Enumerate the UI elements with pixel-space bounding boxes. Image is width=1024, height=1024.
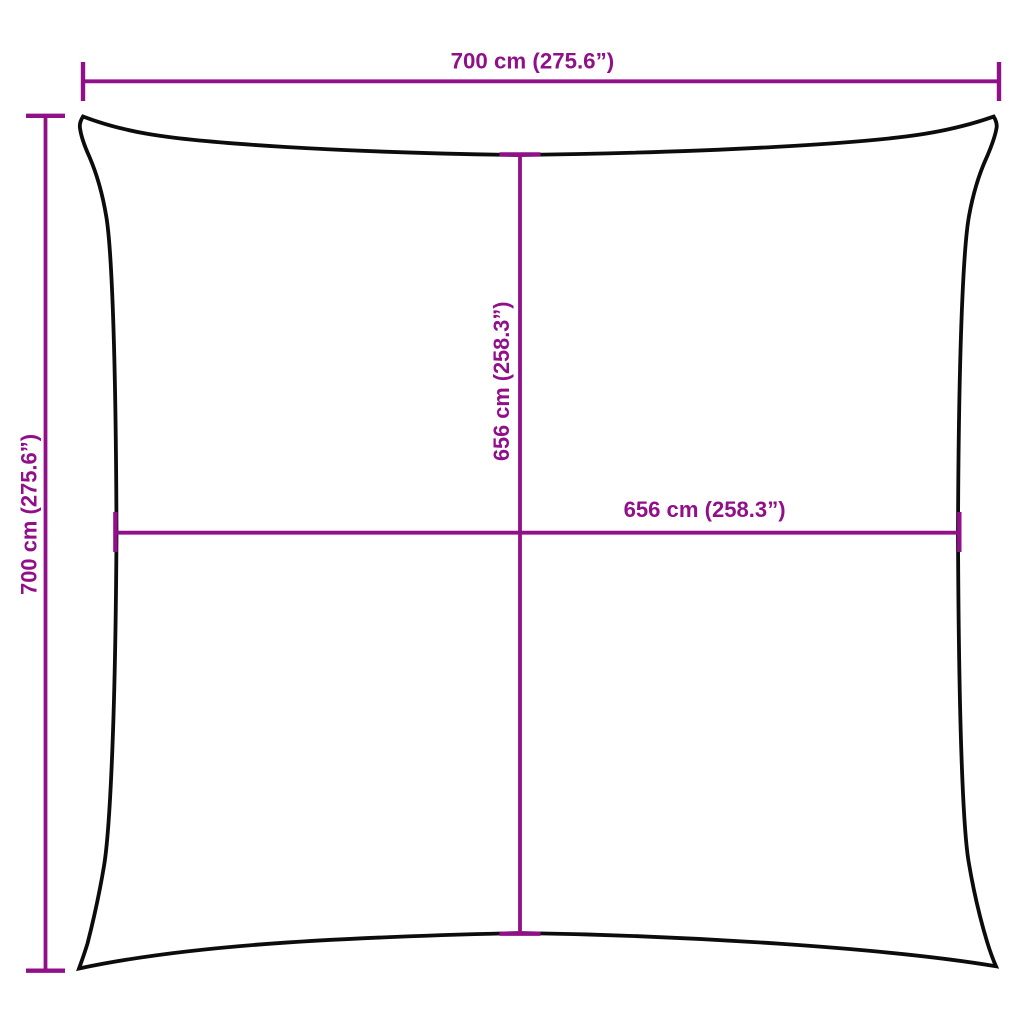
svg-text:700 cm (275.6”): 700 cm (275.6”) (451, 48, 615, 73)
svg-text:656 cm (258.3”): 656 cm (258.3”) (624, 497, 786, 522)
svg-text:700 cm (275.6”): 700 cm (275.6”) (17, 434, 42, 595)
svg-text:656 cm (258.3”): 656 cm (258.3”) (489, 302, 514, 462)
